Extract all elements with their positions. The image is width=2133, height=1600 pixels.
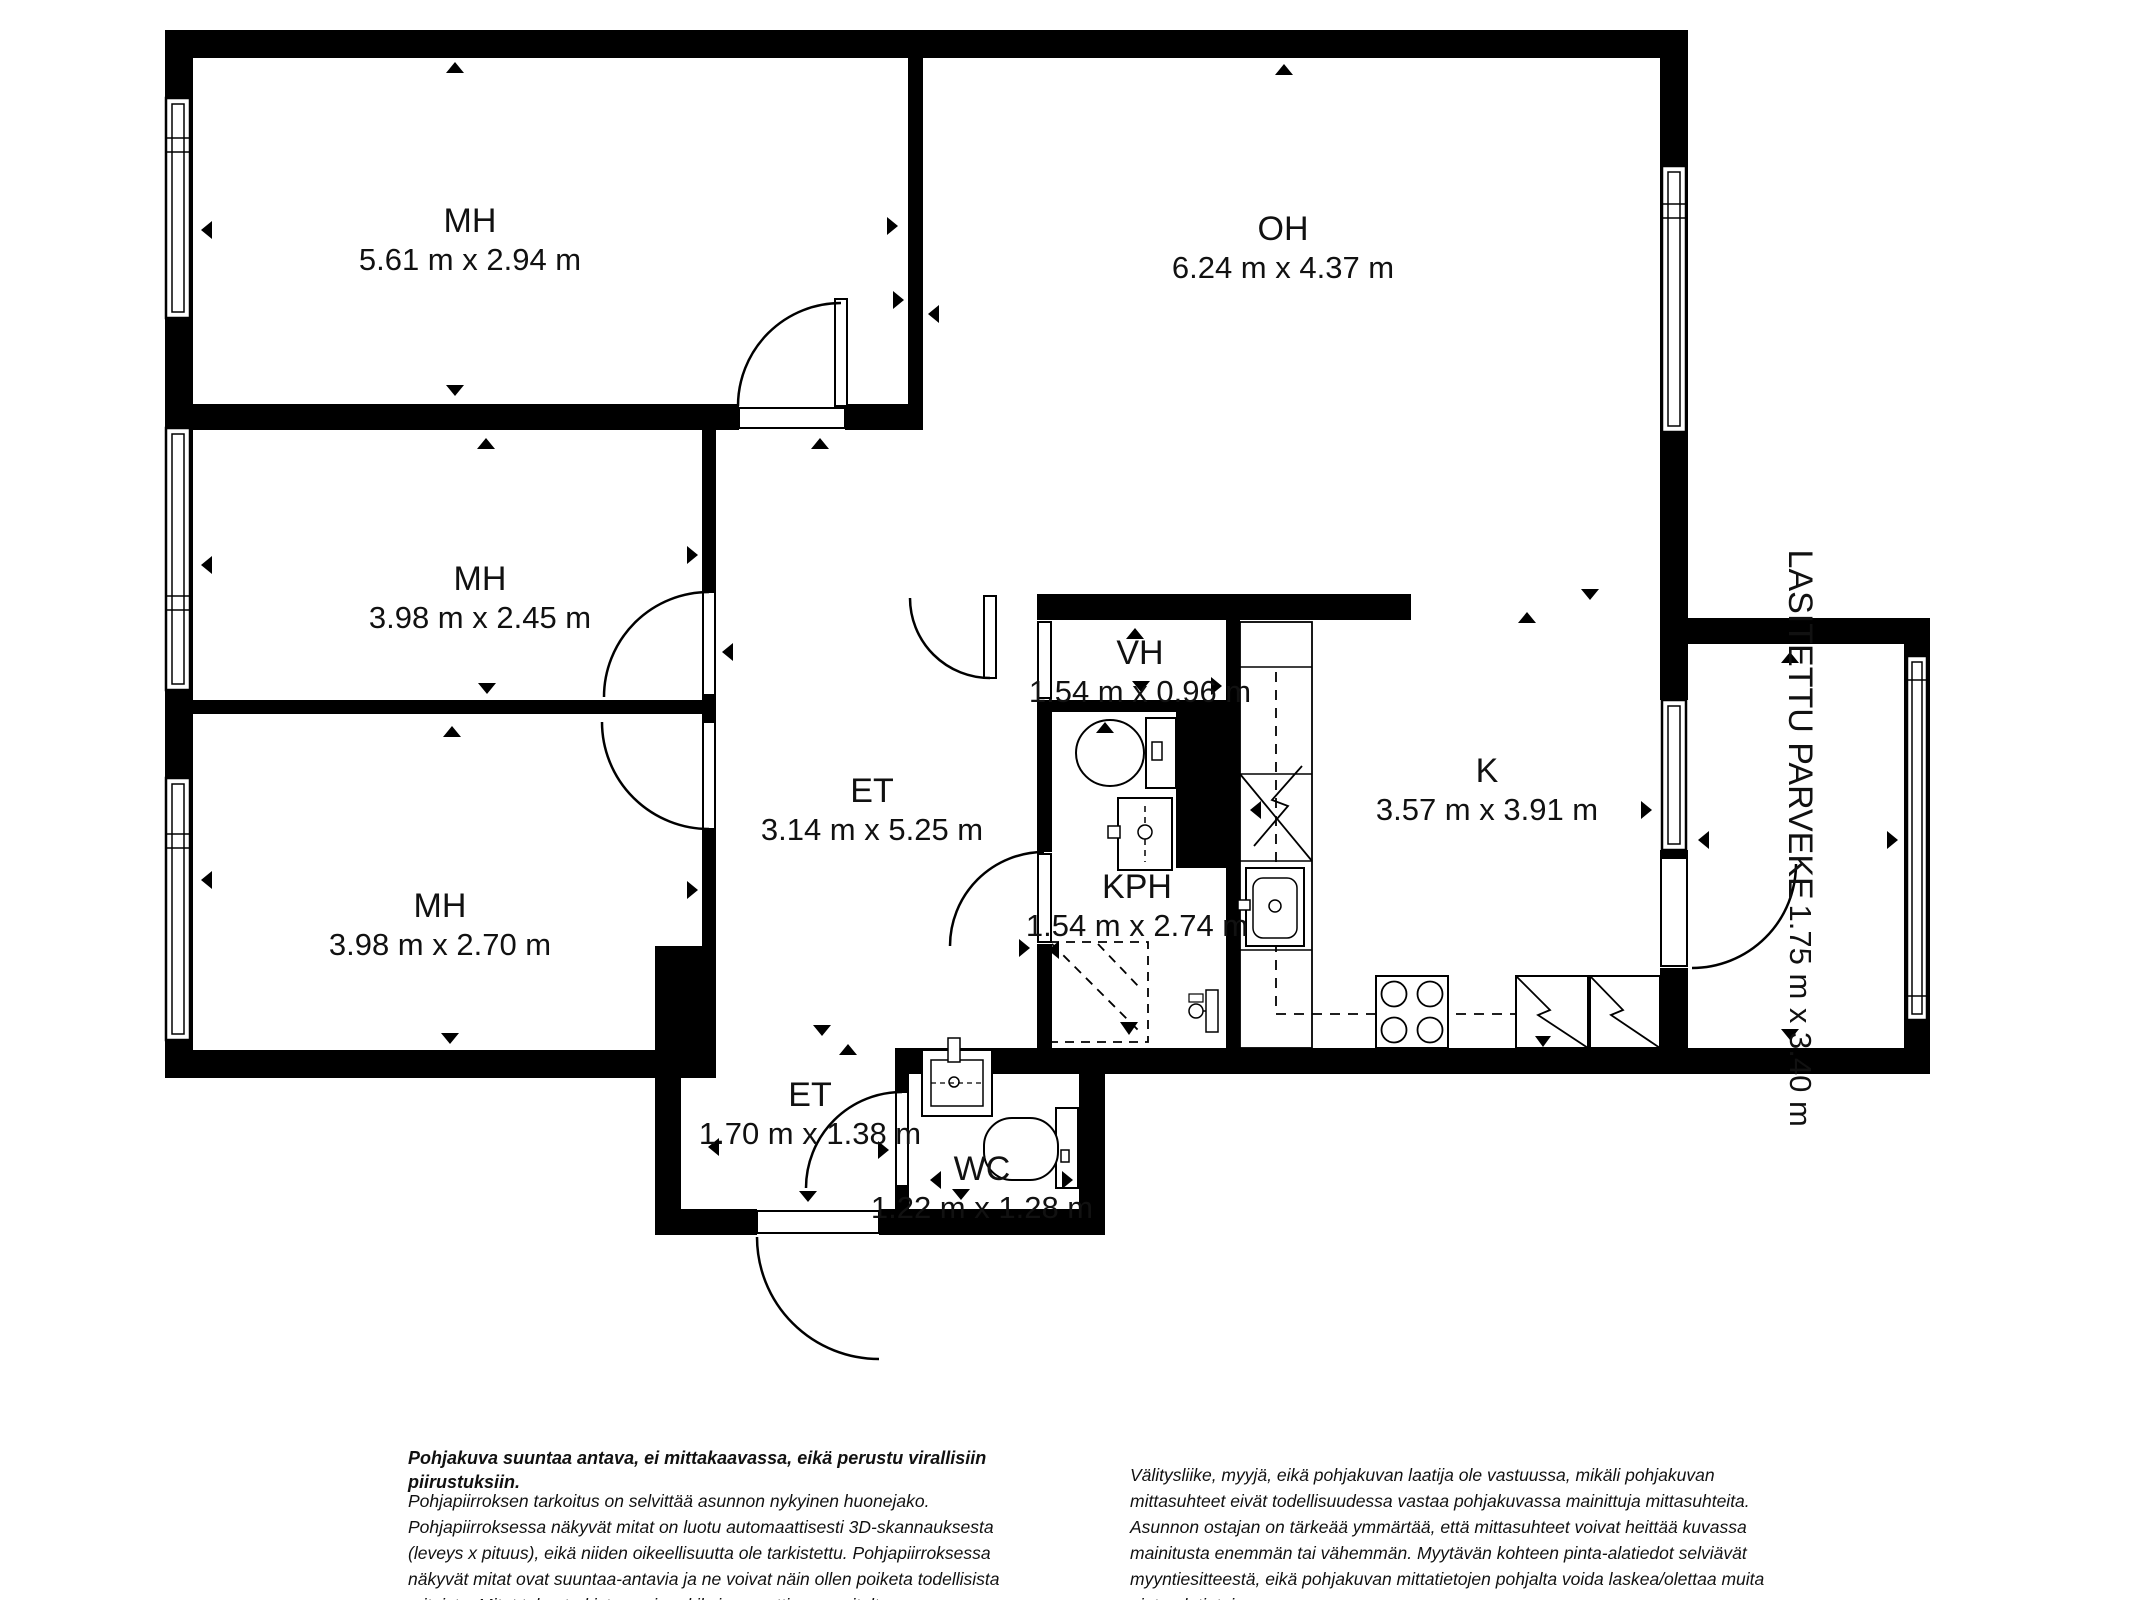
washing-machine-valve-icon: [1189, 990, 1218, 1032]
room-dimensions: 1.54 m x 2.74 m: [1026, 907, 1248, 945]
wall-kitchen-top: [1037, 594, 1411, 620]
window-icon-mh2: [166, 428, 190, 690]
door-arc-entry: [757, 1237, 879, 1359]
door-leaf-vh: [984, 596, 996, 678]
room-name: MH: [359, 201, 581, 241]
door-threshold-mh2: [703, 592, 715, 695]
window-icon-oh: [1662, 166, 1686, 432]
room-name: K: [1376, 751, 1598, 791]
room-dimensions: 1.22 m x 1.28 m: [871, 1189, 1093, 1227]
wall-mh3-right-lower: [702, 829, 716, 960]
door-threshold-balcony: [1661, 858, 1687, 966]
wall-mh3-bottom: [165, 1050, 681, 1078]
room-name: MH: [329, 886, 551, 926]
toilet-icon-kph: [1076, 718, 1176, 788]
wall-balcony-left-c: [1660, 968, 1688, 1048]
wall-mh1-bottom-right: [845, 404, 923, 430]
wall-mh2-mh3-divider: [165, 700, 716, 714]
door-threshold-entry: [757, 1211, 879, 1233]
room-label-oh: OH 6.24 m x 4.37 m: [1172, 209, 1394, 287]
door-arc-vh: [910, 598, 990, 678]
room-name: LASITETTU PARVEKE: [1778, 550, 1822, 900]
sink-icon-wc: [922, 1038, 992, 1116]
room-name: KPH: [1026, 867, 1248, 907]
room-name: MH: [369, 559, 591, 599]
wall-kph-shaft: [1176, 712, 1226, 868]
room-dimensions: 6.24 m x 4.37 m: [1172, 249, 1394, 287]
window-icon-mh3: [166, 778, 190, 1040]
room-name: ET: [761, 771, 983, 811]
room-label-kph: KPH 1.54 m x 2.74 m: [1026, 867, 1248, 945]
disclaimer-title: Pohjakuva suuntaa antava, ei mittakaavas…: [408, 1446, 1048, 1494]
room-label-mh2: MH 3.98 m x 2.45 m: [369, 559, 591, 637]
door-arc-mh3: [602, 722, 709, 829]
room-dimensions: 1.75 m x 3.40 m: [1778, 904, 1822, 1126]
room-dimensions: 1.70 m x 1.38 m: [699, 1115, 921, 1153]
shower-icon-kph: [1050, 942, 1148, 1042]
door-leaf-mh1: [835, 299, 847, 406]
floor-plan-page: MH 5.61 m x 2.94 m OH 6.24 m x 4.37 m MH…: [0, 0, 2133, 1600]
wall-mh2-right-upper: [702, 430, 716, 592]
room-name: WC: [871, 1149, 1093, 1189]
room-label-vh: VH 1.54 m x 0.96 m: [1029, 633, 1251, 711]
wall-top: [165, 30, 1688, 58]
room-label-et: ET 3.14 m x 5.25 m: [761, 771, 983, 849]
door-threshold-mh3: [703, 722, 715, 829]
door-arc-mh1: [738, 303, 841, 406]
wall-entry-bottom-left: [655, 1209, 757, 1235]
room-name: VH: [1029, 633, 1251, 673]
wall-mh1-bottom-left: [165, 404, 739, 430]
disclaimer-right-paragraph: Välitysliike, myyjä, eikä pohjakuvan laa…: [1130, 1462, 1770, 1600]
wall-mh3-right-stub: [702, 714, 716, 722]
wall-mh1-oh-divider: [908, 30, 923, 404]
window-icon-mh1: [166, 98, 190, 318]
room-dimensions: 3.98 m x 2.70 m: [329, 926, 551, 964]
room-dimensions: 3.57 m x 3.91 m: [1376, 791, 1598, 829]
door-threshold-mh1: [739, 408, 845, 428]
room-label-k: K 3.57 m x 3.91 m: [1376, 751, 1598, 829]
room-name: ET: [699, 1075, 921, 1115]
room-dimensions: 3.14 m x 5.25 m: [761, 811, 983, 849]
refrigerator-icon: [1516, 976, 1588, 1048]
room-label-et2: ET 1.70 m x 1.38 m: [699, 1075, 921, 1153]
window-icon-kitchen-balcony: [1662, 700, 1686, 850]
room-label-wc: WC 1.22 m x 1.28 m: [871, 1149, 1093, 1227]
wall-balcony-left-a: [1660, 680, 1688, 700]
room-dimensions: 3.98 m x 2.45 m: [369, 599, 591, 637]
room-name: OH: [1172, 209, 1394, 249]
stove-icon: [1376, 976, 1448, 1048]
sink-icon-kph: [1108, 798, 1172, 870]
door-arc-mh2: [604, 592, 709, 697]
wall-entry-left: [655, 1050, 681, 1235]
room-label-parveke: LASITETTU PARVEKE 1.75 m x 3.40 m: [1778, 550, 1822, 1127]
freezer-icon: [1590, 976, 1660, 1048]
room-label-mh3: MH 3.98 m x 2.70 m: [329, 886, 551, 964]
room-label-mh1: MH 5.61 m x 2.94 m: [359, 201, 581, 279]
wall-bottom: [895, 1048, 1930, 1074]
room-dimensions: 5.61 m x 2.94 m: [359, 241, 581, 279]
disclaimer-left-paragraph: Pohjapiirroksen tarkoitus on selvittää a…: [408, 1488, 1033, 1600]
room-dimensions: 1.54 m x 0.96 m: [1029, 673, 1251, 711]
wall-hall-mid: [1037, 700, 1052, 852]
window-icon-balcony-glazing: [1907, 656, 1927, 1020]
